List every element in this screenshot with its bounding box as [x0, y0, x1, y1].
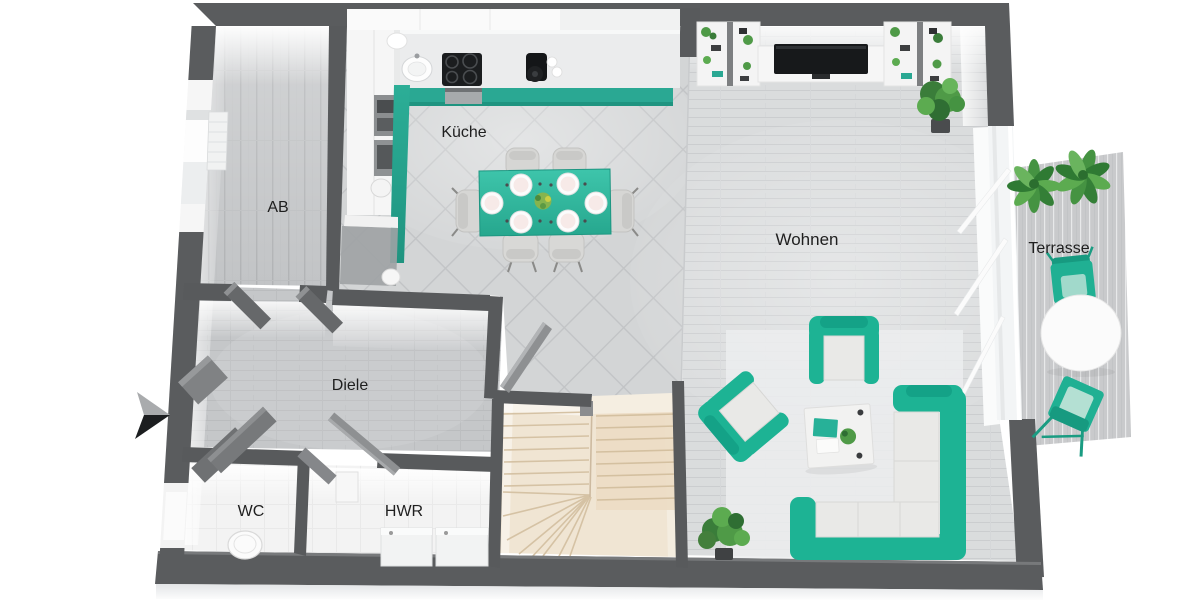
svg-text:Küche: Küche	[441, 124, 486, 141]
svg-text:Terrasse: Terrasse	[1028, 240, 1089, 257]
svg-text:Diele: Diele	[332, 377, 369, 394]
svg-text:HWR: HWR	[385, 503, 423, 520]
svg-text:Wohnen: Wohnen	[775, 230, 838, 249]
svg-text:AB: AB	[267, 199, 288, 216]
svg-text:WC: WC	[238, 503, 265, 520]
